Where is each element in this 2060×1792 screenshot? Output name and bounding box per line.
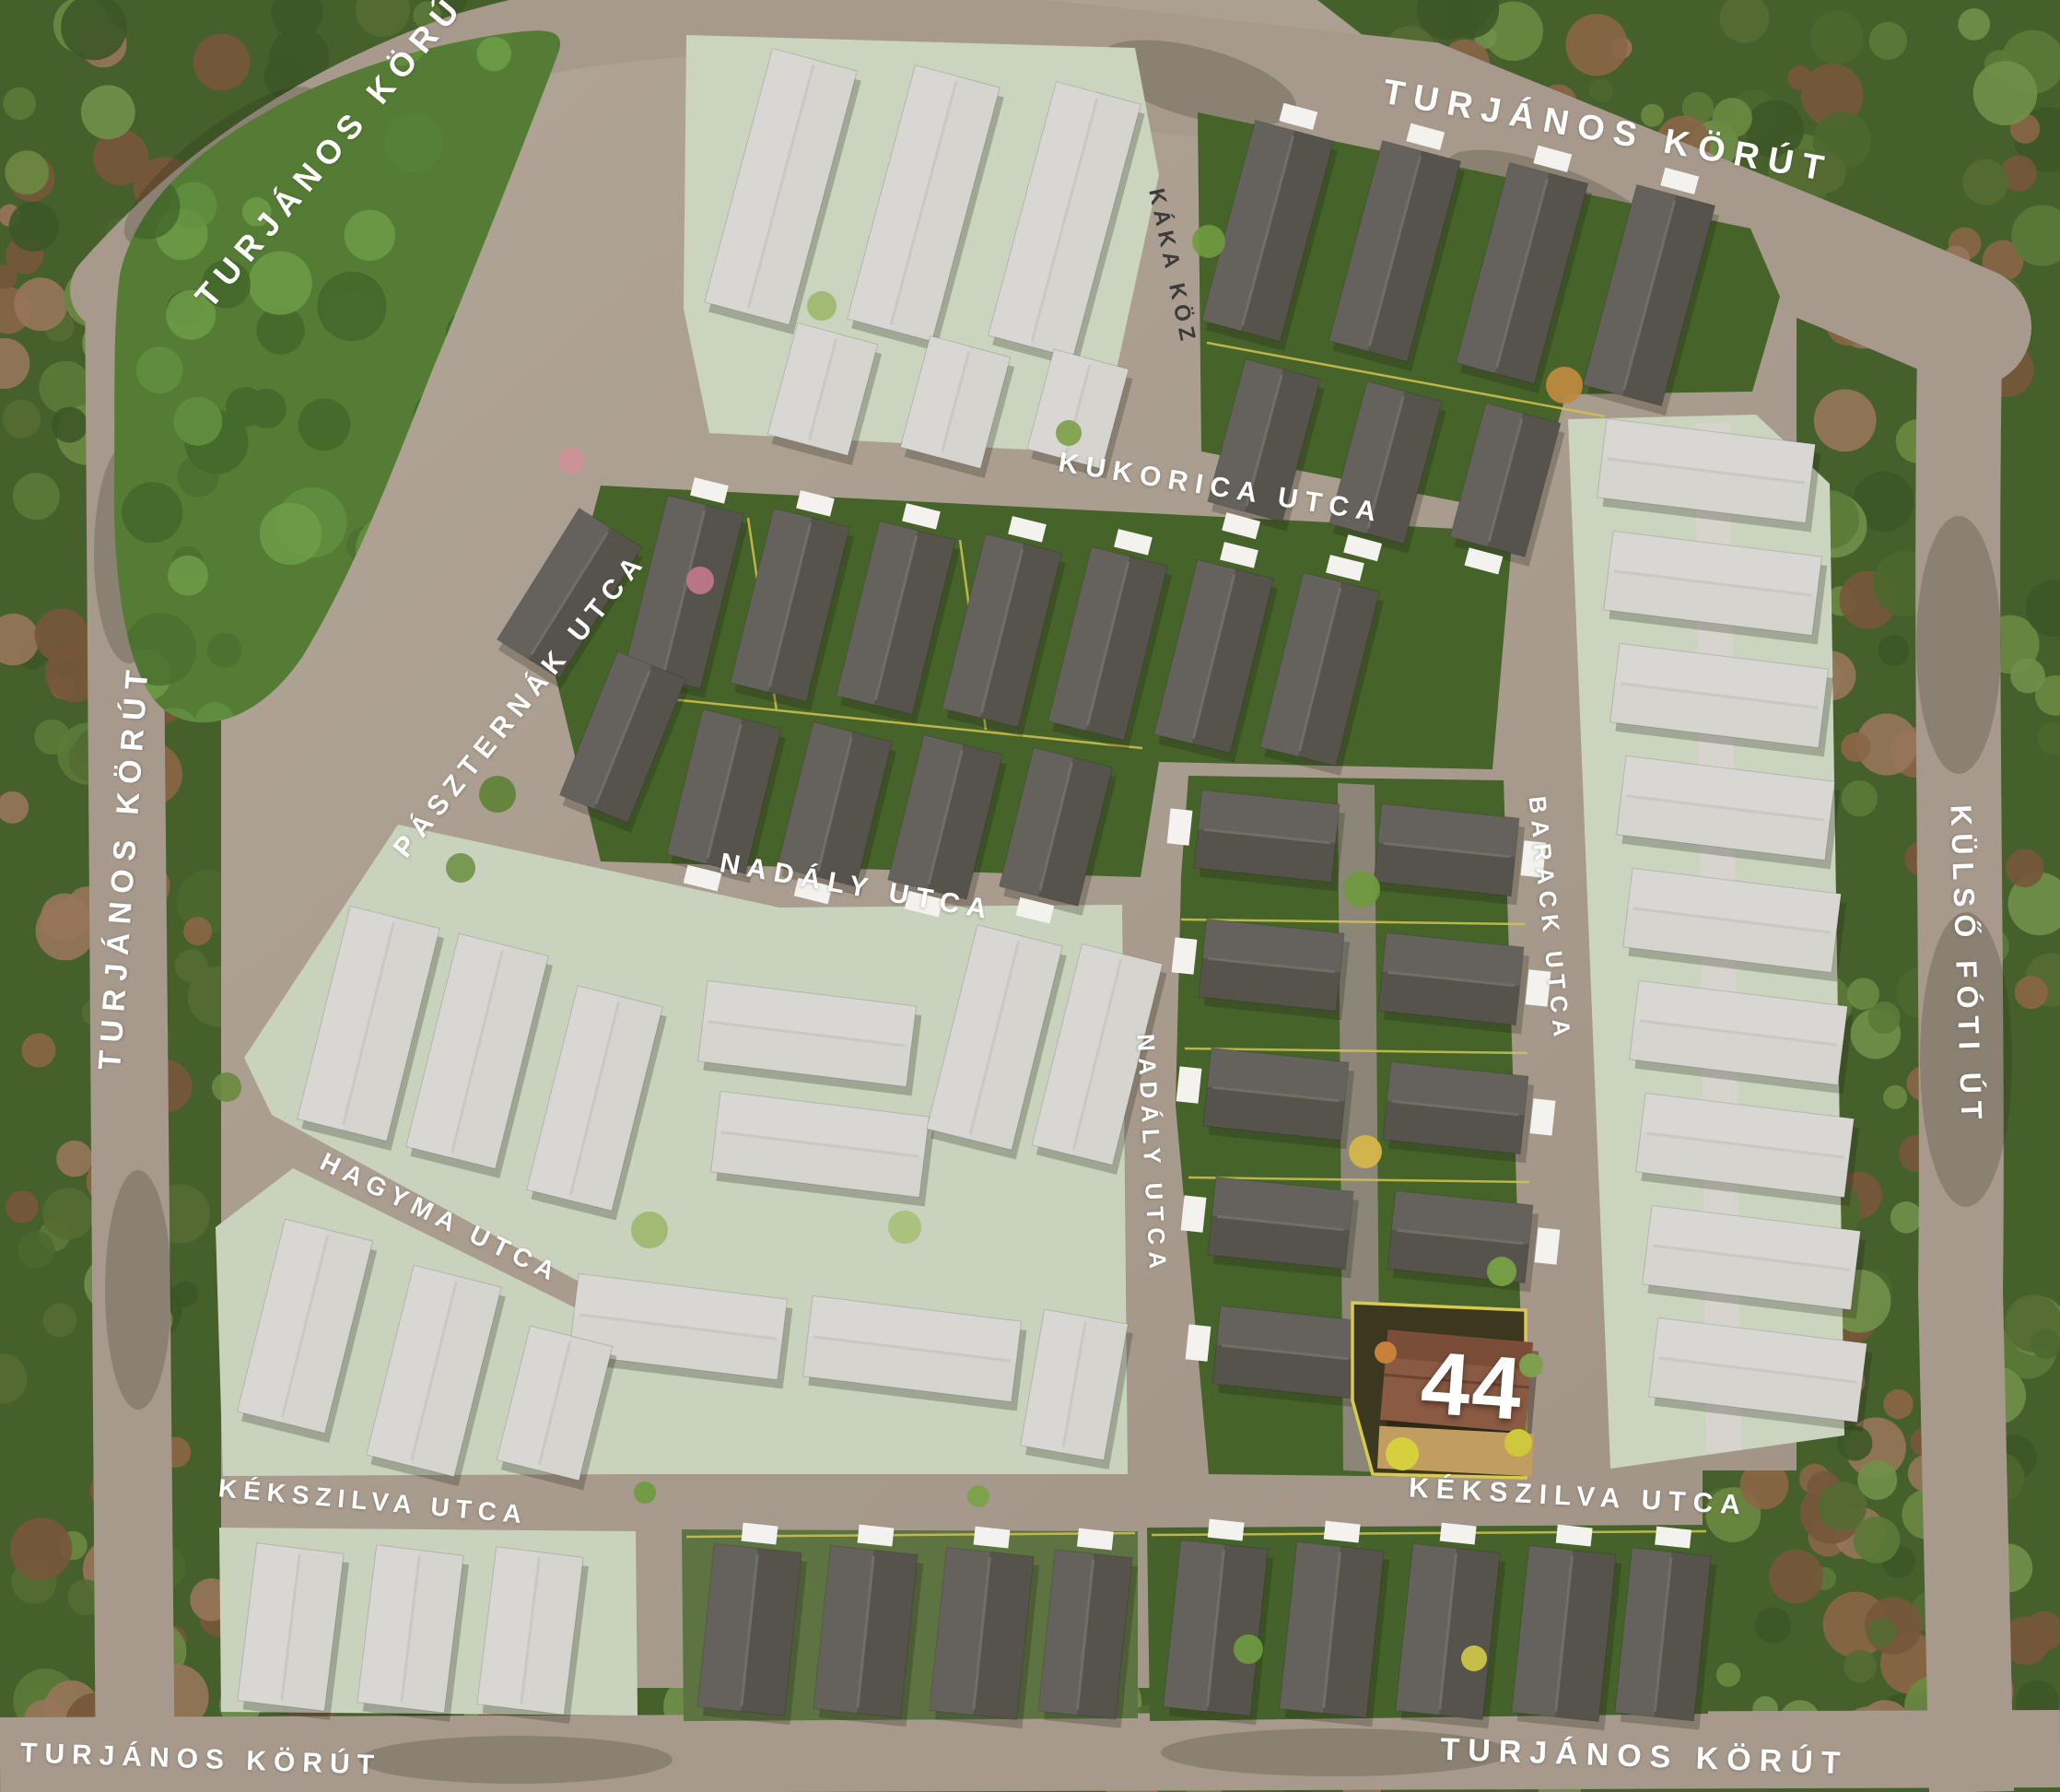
site-plan-map — [0, 0, 2060, 1792]
site-plan: TURJÁNOS KÖRÚT TURJÁNOS KÖRÚT TURJÁNOS K… — [0, 0, 2060, 1792]
plot-44-marker[interactable]: 44 — [1418, 1332, 1527, 1440]
